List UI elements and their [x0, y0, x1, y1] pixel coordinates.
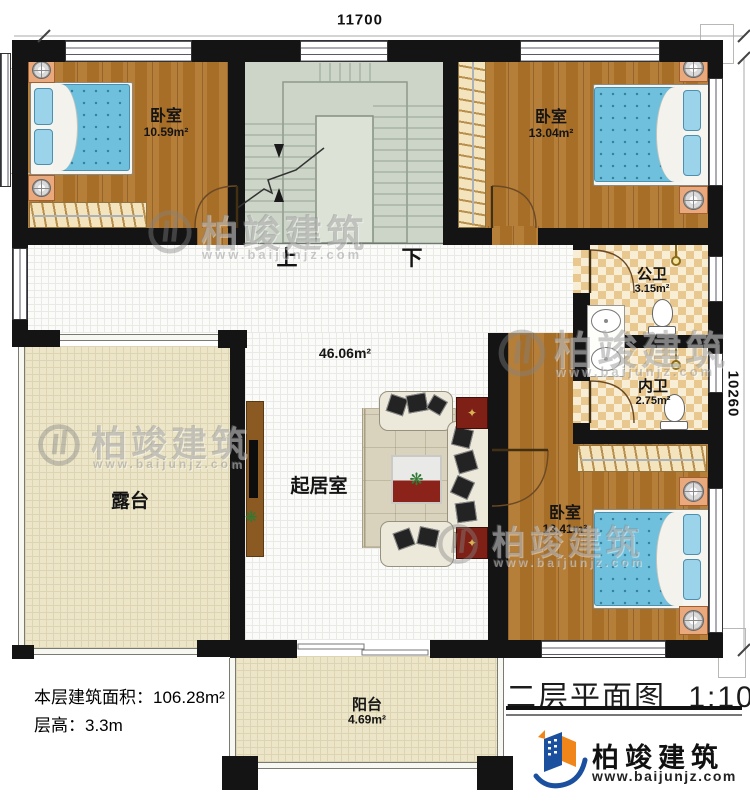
wall-segment	[666, 640, 723, 658]
living-area-label: 46.06m²	[319, 345, 371, 361]
window	[300, 40, 388, 62]
pillow	[34, 88, 53, 125]
terrace-post	[218, 330, 247, 348]
floor-area-note: 本层建筑面积：106.28m²	[34, 683, 225, 708]
side-table: ✦	[456, 527, 488, 559]
pillow	[683, 559, 701, 600]
toilet-icon	[652, 299, 673, 327]
side-table: ✦	[456, 397, 488, 429]
balcony-railing	[229, 658, 236, 758]
nightstand	[28, 175, 55, 201]
brand-logo-icon	[531, 727, 589, 791]
table-lamp-icon	[32, 179, 51, 197]
window	[12, 248, 28, 320]
plant-icon: ❋	[245, 510, 258, 525]
room-label-bedroom-ne: 卧室 13.04m²	[529, 109, 574, 141]
bath-inner-door-floor	[573, 381, 590, 423]
ceiling-lamp-icon	[671, 360, 681, 370]
wall-segment	[230, 640, 297, 658]
balcony-railing	[258, 762, 477, 769]
room-label-bath-inner: 内卫 2.75m²	[636, 378, 671, 408]
hall-floor	[27, 245, 573, 333]
room-label-living: 起居室	[290, 476, 347, 498]
bath-public-door-floor	[573, 250, 590, 293]
bed	[593, 509, 710, 609]
cushion	[455, 501, 478, 524]
closet	[458, 48, 486, 228]
bed	[30, 82, 133, 175]
dimension-right: 10260	[725, 371, 742, 418]
wall-segment	[443, 40, 458, 245]
table-lamp-icon	[683, 481, 704, 502]
window	[0, 53, 11, 187]
balcony-railing	[497, 658, 504, 758]
table-lamp-icon	[32, 61, 51, 79]
wall-segment	[430, 640, 541, 658]
pillow	[34, 129, 53, 165]
room-label-bath-public: 公卫 3.15m²	[635, 266, 670, 296]
balcony-post	[222, 756, 258, 790]
bed	[593, 84, 710, 186]
terrace-post	[12, 645, 34, 659]
wall-segment	[443, 228, 492, 245]
room-label-bedroom-se: 卧室 13.41m²	[543, 505, 588, 537]
wall-segment	[573, 430, 708, 444]
lamp-cord	[675, 243, 677, 257]
wall-segment	[12, 40, 28, 248]
terrace-railing	[18, 347, 25, 645]
coffee-table: ❋	[391, 455, 442, 504]
pillow	[683, 135, 701, 176]
stair-up-label: 上	[277, 247, 298, 271]
room-label-bedroom-nw: 卧室 10.59m²	[144, 108, 189, 140]
stairwell-floor	[245, 62, 443, 243]
toilet-tank	[660, 421, 688, 430]
window	[541, 640, 666, 658]
title-rule-thin	[506, 714, 742, 716]
sink-icon	[591, 309, 621, 333]
toilet-tank	[648, 326, 676, 335]
nightstand	[679, 186, 708, 214]
pillow	[683, 514, 701, 555]
wall-segment	[228, 40, 245, 245]
nightstand	[679, 606, 708, 635]
room-label-terrace: 露台	[111, 491, 149, 513]
floor-plan-canvas: ❋ ✦ ✦ ❋	[0, 0, 750, 802]
bedroom-ne-door-floor	[488, 226, 540, 245]
closet	[577, 445, 707, 472]
dimension-top: 11700	[337, 12, 383, 29]
terrace-post	[12, 330, 60, 347]
closet	[29, 202, 147, 228]
wall-segment	[230, 344, 245, 640]
plant-icon: ❋	[409, 471, 423, 488]
terrace-railing	[34, 648, 197, 655]
nightstand	[679, 477, 708, 506]
window	[65, 40, 192, 62]
window	[520, 40, 660, 62]
sink-icon	[591, 347, 621, 371]
window	[708, 78, 723, 186]
window	[708, 256, 723, 302]
cushion	[406, 392, 429, 413]
stair-down-label: 下	[402, 247, 423, 271]
wall-segment	[12, 228, 197, 245]
cushion	[416, 526, 439, 548]
floor-height-note: 层高：3.3m	[34, 711, 123, 736]
pillow	[683, 90, 701, 131]
table-lamp-icon	[683, 610, 704, 631]
wall-segment	[488, 333, 508, 640]
terrace-railing	[60, 334, 218, 341]
wall-segment	[573, 243, 590, 250]
wall-segment	[538, 228, 712, 245]
ceiling-lamp-icon	[671, 256, 681, 266]
terrace-post	[197, 640, 233, 657]
window	[708, 488, 723, 633]
brand-site: www.baijunjz.com	[592, 768, 737, 784]
table-lamp-icon	[683, 190, 704, 210]
balcony-post	[477, 756, 513, 790]
tv-icon	[249, 440, 258, 498]
window	[708, 353, 723, 393]
room-label-balcony: 阳台 4.69m²	[348, 696, 386, 727]
corridor-floor	[508, 333, 573, 444]
title-rule-thick	[506, 706, 742, 710]
